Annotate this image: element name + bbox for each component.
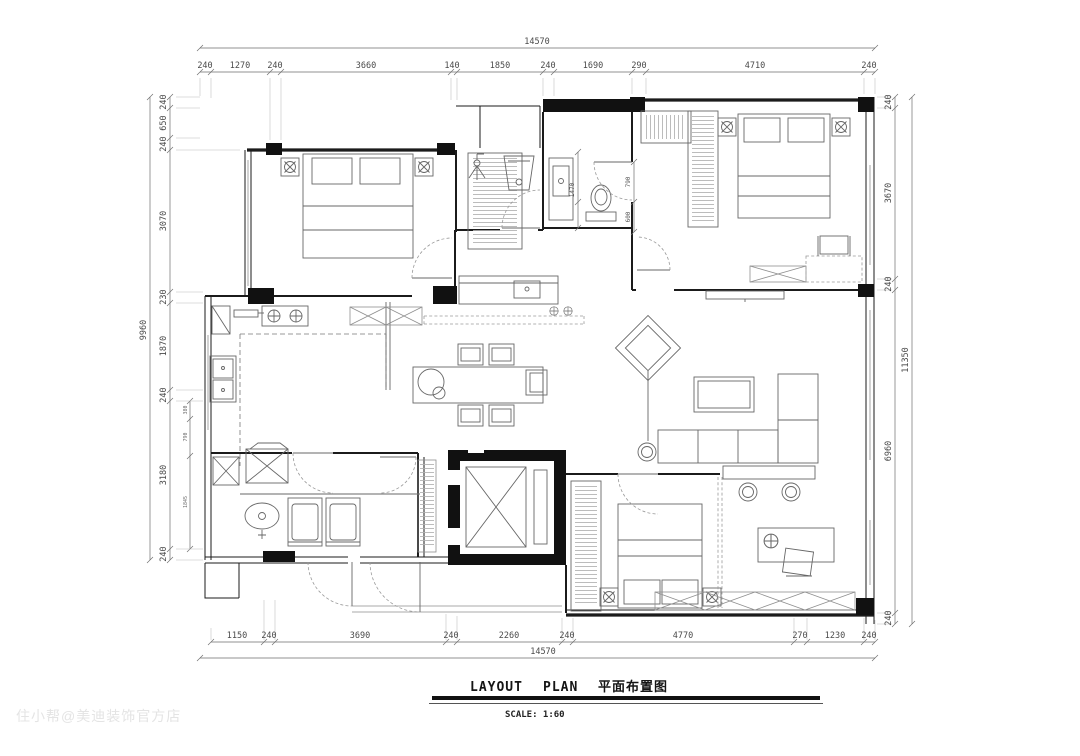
dim-top-7: 1690: [583, 61, 603, 71]
dim-bath-600: 600: [625, 211, 632, 222]
nightstand-lamp: [832, 118, 850, 136]
master-bedroom: [637, 111, 862, 282]
stool: [739, 483, 757, 501]
stool-table: [818, 236, 850, 256]
dim-left-0: 240: [159, 94, 169, 109]
dining-chair: [489, 344, 514, 365]
title-block: LAYOUT PLAN 平面布置图 SCALE: 1:60: [429, 679, 823, 720]
kitchen: [210, 302, 390, 466]
hall-fixture-icon: [550, 307, 558, 315]
bench: [750, 266, 806, 282]
dimension-top: 14570 240 1270 240 3660 140 1850 240 169…: [197, 37, 878, 75]
floor-plan-page: 1470 790 600: [0, 0, 1080, 756]
dim-right-0: 240: [884, 94, 894, 109]
table-plant: [418, 369, 445, 399]
desk: [758, 528, 834, 562]
study-area: [758, 528, 834, 576]
tv: [706, 291, 784, 302]
range-hood: [234, 310, 264, 317]
bedroom-top-left: [281, 153, 522, 278]
dim-right-3: 6960: [884, 441, 894, 461]
water-heater: [246, 443, 288, 483]
dim-bot-5: 240: [559, 631, 574, 641]
interior-dims: 380 790 1845: [183, 398, 193, 552]
nightstand-lamp: [600, 588, 618, 606]
dim-laundry-1: 380: [183, 405, 189, 414]
stool: [782, 483, 800, 501]
washer: [288, 498, 322, 546]
dim-bot-4: 2260: [499, 631, 519, 641]
hallway: [350, 276, 584, 325]
dimension-bottom: 1150 240 3690 240 2260 240 4770 270 1230…: [197, 631, 878, 661]
title-rule-thin: [429, 703, 823, 704]
dim-right-4: 240: [884, 610, 894, 625]
dim-left-2: 240: [159, 136, 169, 151]
dim-top-6: 240: [540, 61, 555, 71]
floor-plan-canvas: 1470 790 600: [0, 0, 1080, 756]
dim-bot-7: 270: [792, 631, 807, 641]
burner-icon: [290, 310, 302, 322]
dim-bot-3: 240: [443, 631, 458, 641]
dim-bot-1: 240: [261, 631, 276, 641]
dim-left-3: 3070: [159, 211, 169, 231]
dimension-right: 240 3670 240 6960 240 11350: [884, 94, 915, 627]
dim-top-overall: 14570: [524, 37, 550, 47]
dim-laundry-2: 790: [183, 432, 189, 441]
watermark: 住小帮@美迪装饰官方店: [16, 706, 181, 726]
dining-chair: [526, 370, 547, 395]
dim-bath-790: 790: [625, 176, 632, 187]
burner-icon: [268, 310, 280, 322]
nightstand-lamp: [281, 158, 299, 176]
console-basin: [459, 276, 558, 304]
bathroom: 1470 790 600: [549, 149, 637, 235]
decor-diamond: [615, 315, 680, 441]
desk-lamp-icon: [764, 534, 778, 548]
wardrobe: [571, 481, 601, 611]
dim-right-2: 240: [884, 276, 894, 291]
closet-top: [641, 111, 691, 143]
console-table: [723, 466, 815, 479]
dim-right-1: 3670: [884, 183, 894, 203]
dim-left-8: 240: [159, 546, 169, 561]
dining-area: [413, 344, 547, 426]
door-swing: [618, 474, 658, 514]
nightstand-lamp: [415, 158, 433, 176]
side-table: [638, 443, 656, 461]
elevator-shaft: [446, 444, 566, 565]
dim-bot-8: 1230: [825, 631, 845, 641]
door-swing: [412, 238, 452, 278]
coffee-table: [694, 377, 754, 412]
laundry-sink: [245, 503, 279, 539]
dining-chair: [458, 405, 483, 426]
bed: [618, 504, 702, 608]
entry-porch: [308, 562, 420, 612]
dim-left-6: 240: [159, 387, 169, 402]
fridge: [212, 306, 230, 334]
dim-top-0: 240: [197, 61, 212, 71]
dim-bot-0: 1150: [227, 631, 247, 641]
hall-fixture-icon: [564, 307, 572, 315]
nightstand-lamp: [718, 118, 736, 136]
door-swing: [293, 453, 333, 493]
kitchen-sink: [210, 356, 236, 402]
counter-outline: [240, 334, 386, 466]
bedroom-bottom: [571, 474, 855, 611]
bay-window-bench: [655, 592, 855, 610]
dim-left-4: 230: [159, 289, 169, 304]
bed: [738, 114, 830, 218]
closet-side: [688, 111, 718, 227]
dim-bottom-overall: 14570: [530, 647, 556, 657]
dim-top-5: 1850: [490, 61, 510, 71]
dim-right-overall: 11350: [901, 347, 911, 373]
dim-laundry-3: 1845: [183, 496, 189, 508]
peninsula: [386, 302, 390, 390]
living-room: [615, 291, 818, 501]
sofa: [658, 374, 818, 463]
entry-door-swing: [370, 562, 420, 612]
title-zh: 平面布置图: [598, 679, 668, 695]
dim-left-1: 650: [159, 115, 169, 130]
door-swing: [637, 237, 670, 270]
dining-table: [413, 367, 543, 403]
mop-basin: [504, 156, 534, 190]
side-door-swing: [308, 562, 352, 606]
dim-left-overall: 9960: [139, 320, 149, 340]
corridor-bath: [380, 457, 436, 552]
bed: [303, 154, 413, 258]
title-en-1: LAYOUT: [470, 680, 523, 695]
dim-bot-6: 4770: [673, 631, 693, 641]
dim-top-4: 140: [444, 61, 459, 71]
dim-top-2: 240: [267, 61, 282, 71]
toilet: [586, 185, 616, 221]
scale-label: SCALE: 1:60: [505, 710, 565, 720]
dim-bot-9: 240: [861, 631, 876, 641]
dim-top-9: 4710: [745, 61, 765, 71]
dim-left-7: 3180: [159, 465, 169, 485]
dryer: [326, 498, 360, 546]
title-rule-thick: [432, 696, 820, 700]
dim-top-3: 3660: [356, 61, 376, 71]
dim-top-10: 240: [861, 61, 876, 71]
dim-bath-1470: 1470: [569, 182, 576, 197]
dimension-left: 240 650 240 3070 230 1870 240 3180 240 9…: [139, 94, 173, 563]
dim-bot-2: 3690: [350, 631, 370, 641]
window-seat: [806, 256, 862, 282]
cabinet: [213, 457, 239, 485]
laundry-room: 380 790 1845: [183, 398, 420, 552]
dim-top-8: 290: [631, 61, 646, 71]
hall-strip: [424, 316, 584, 324]
dining-chair: [489, 405, 514, 426]
title-en-2: PLAN: [543, 680, 578, 695]
door-swing: [380, 457, 416, 493]
dim-top-1: 1270: [230, 61, 250, 71]
dim-left-5: 1870: [159, 336, 169, 356]
dining-chair: [458, 344, 483, 365]
